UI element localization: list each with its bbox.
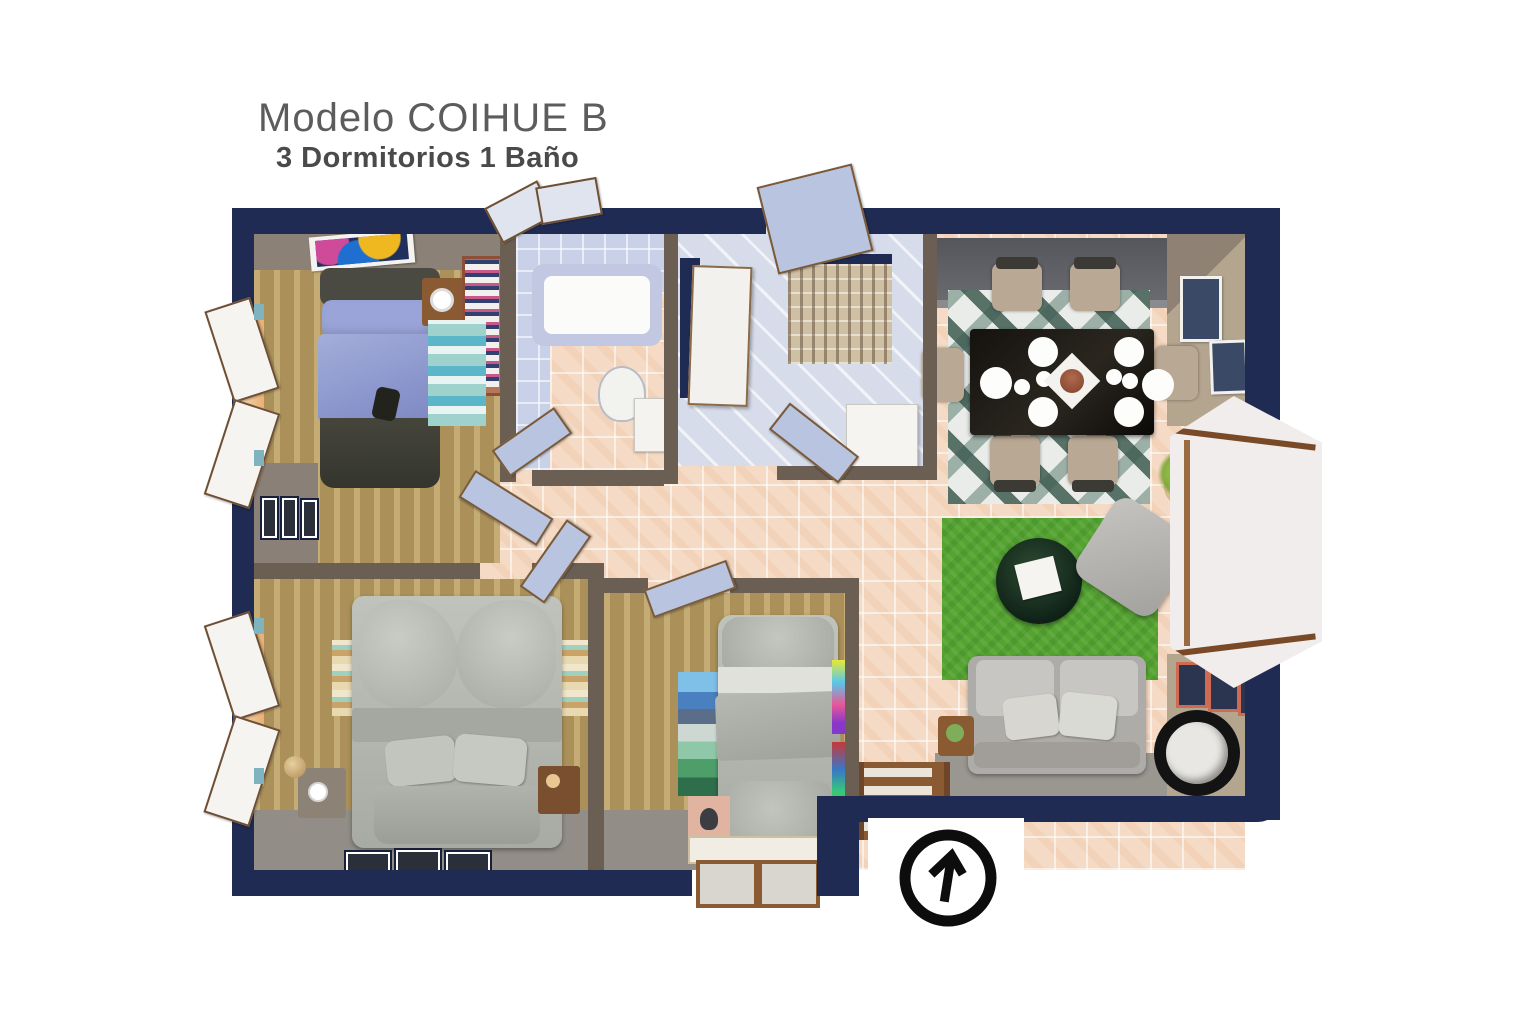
master-bed	[352, 596, 562, 848]
dining-chair	[992, 263, 1042, 311]
coffee-table	[996, 538, 1082, 624]
bed-pillow	[384, 734, 458, 787]
window-jamb	[254, 768, 264, 784]
dining-chair	[1068, 436, 1118, 486]
bathtub	[532, 264, 662, 346]
sofa-pillow	[1058, 691, 1118, 741]
wall-master-bedroom3	[588, 563, 604, 870]
master-nightstand	[298, 768, 346, 818]
wall-frame	[1180, 276, 1222, 342]
wall-frame	[1209, 339, 1249, 394]
dining-chair	[1070, 263, 1120, 311]
page: { "header": { "title": "Modelo COIHUE B"…	[0, 0, 1536, 1024]
window-jamb	[254, 450, 264, 466]
pillow	[722, 617, 834, 669]
north-arrow-icon	[898, 828, 998, 928]
bed-footer	[320, 418, 440, 488]
wall-bathroom-south	[532, 470, 664, 486]
floor-lamp	[1154, 710, 1240, 796]
floor-plan	[232, 208, 1280, 896]
blanket	[715, 691, 841, 761]
bay-window	[1170, 396, 1322, 688]
wall-bedroom3-north-b	[730, 578, 846, 593]
bedroom3-wall-art	[832, 660, 845, 734]
side-table	[938, 716, 974, 756]
outer-wall-north	[232, 208, 1280, 234]
hall-frame	[300, 498, 319, 540]
pillow	[358, 600, 458, 708]
bed-pillow	[724, 781, 832, 843]
wall-bedroom3-east	[845, 578, 859, 804]
wall-master-north-a	[254, 563, 480, 579]
wall-closet-south	[777, 466, 937, 480]
window-jamb	[254, 618, 264, 634]
closet-door	[688, 265, 753, 407]
desk-chair	[758, 860, 820, 908]
page-title: Modelo COIHUE B	[258, 96, 609, 141]
desk-chair	[696, 860, 758, 908]
outer-wall-south-left	[232, 870, 692, 896]
pillow	[322, 300, 436, 338]
outer-wall-east-lower	[1245, 660, 1280, 820]
bed-pillow	[452, 733, 528, 787]
bathroom-cabinet	[634, 398, 668, 452]
sofa	[968, 656, 1146, 774]
window-jamb	[254, 304, 264, 320]
hall-frame	[260, 496, 279, 540]
bedroom3-wall-art	[832, 742, 845, 804]
bedroom1-rug	[428, 320, 486, 426]
wall-bedroom3-north-a	[604, 578, 648, 593]
outer-wall-east-upper	[1245, 208, 1280, 420]
storage-rack	[788, 264, 892, 364]
master-nightstand	[538, 766, 580, 814]
table-lamp	[284, 756, 306, 778]
dining-table	[970, 329, 1154, 435]
pillow	[456, 600, 556, 708]
hall-frame	[280, 496, 299, 540]
wall-bathroom-closet	[664, 234, 678, 484]
living-frame	[1176, 662, 1208, 708]
wall-closet-dining	[923, 234, 937, 480]
book	[1014, 556, 1062, 601]
dining-chair	[990, 436, 1040, 486]
page-subtitle: 3 Dormitorios 1 Baño	[276, 142, 579, 175]
sofa-pillow	[1002, 693, 1061, 741]
